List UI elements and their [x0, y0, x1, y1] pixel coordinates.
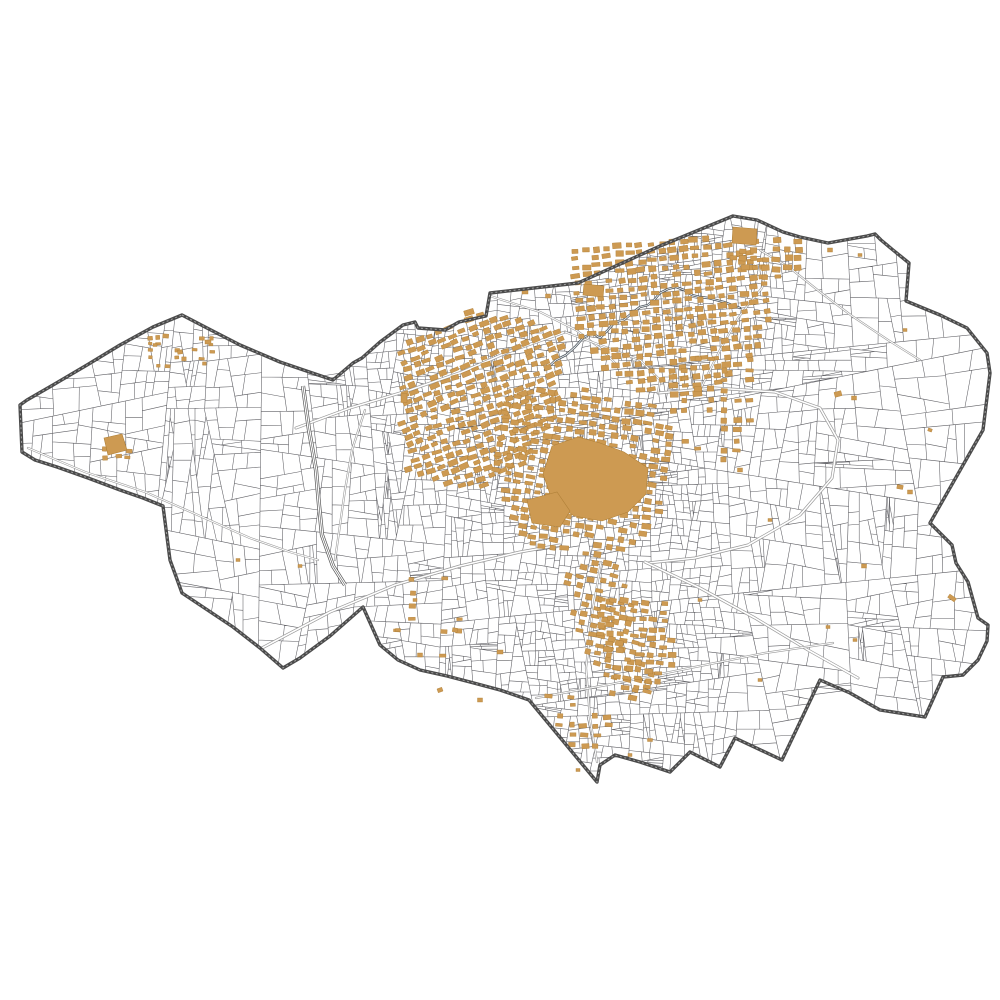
map-page: [0, 0, 1000, 1000]
building: [413, 599, 417, 602]
building: [768, 519, 772, 522]
building: [437, 687, 443, 692]
building: [928, 428, 933, 432]
building: [853, 639, 857, 642]
building: [738, 468, 743, 472]
building: [497, 650, 503, 654]
landmark-west-farm: [104, 434, 127, 455]
building: [396, 629, 401, 632]
building: [908, 490, 913, 494]
building: [452, 628, 458, 633]
building: [177, 350, 183, 355]
building: [576, 769, 580, 772]
building: [298, 565, 302, 568]
building: [698, 599, 702, 602]
building: [897, 485, 904, 490]
landmark-north-hall: [583, 284, 604, 297]
cadastral-map-canvas: [0, 0, 1000, 1000]
building: [205, 340, 211, 344]
building: [903, 329, 907, 332]
road-path: [648, 388, 838, 563]
building: [418, 653, 423, 657]
cadastral-map-figure: [0, 0, 1000, 1000]
building: [828, 248, 833, 252]
building: [758, 679, 762, 682]
road-path: [262, 545, 560, 648]
building: [826, 626, 830, 629]
building: [852, 396, 857, 400]
building: [401, 394, 407, 403]
building: [628, 754, 632, 757]
building: [858, 254, 862, 257]
building: [648, 739, 653, 742]
building: [862, 564, 867, 568]
building: [546, 294, 551, 298]
building: [834, 391, 842, 398]
building: [948, 594, 957, 602]
building: [236, 559, 240, 562]
building: [478, 698, 483, 702]
building: [153, 344, 157, 347]
landmark-big-hall-north: [732, 227, 757, 245]
